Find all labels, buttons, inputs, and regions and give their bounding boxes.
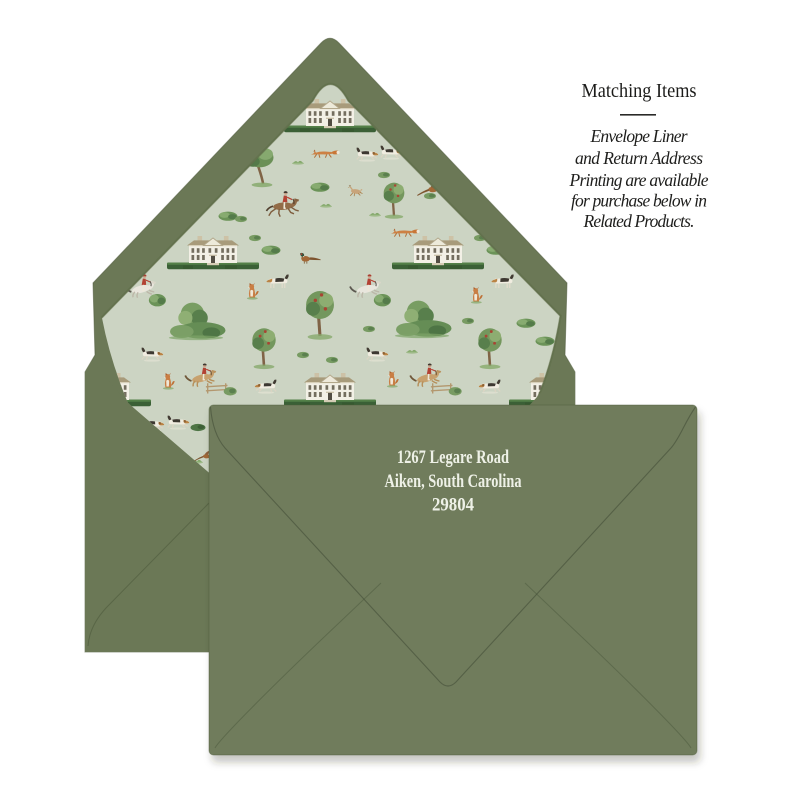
- svg-text:1267 Legare Road: 1267 Legare Road: [397, 448, 510, 468]
- svg-text:for purchase below in: for purchase below in: [571, 191, 707, 211]
- svg-text:Related Products.: Related Products.: [583, 211, 695, 231]
- svg-text:Envelope Liner: Envelope Liner: [590, 126, 688, 146]
- svg-text:Aiken, South Carolina: Aiken, South Carolina: [385, 472, 522, 492]
- svg-text:and Return Address: and Return Address: [575, 148, 703, 168]
- svg-text:29804: 29804: [432, 496, 474, 516]
- svg-text:Printing are available: Printing are available: [569, 170, 709, 190]
- svg-text:Matching Items: Matching Items: [582, 80, 697, 102]
